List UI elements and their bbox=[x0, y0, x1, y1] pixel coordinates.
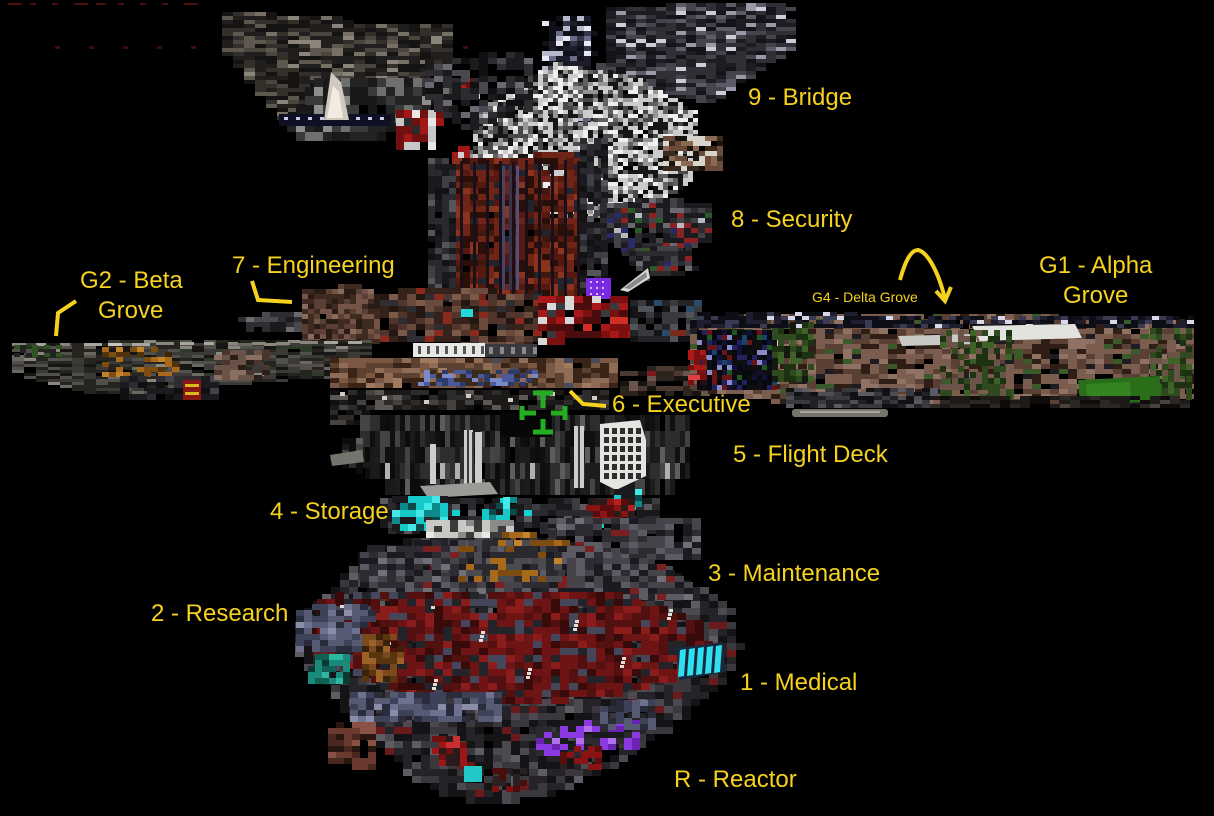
svg-text:G2 - Beta: G2 - Beta bbox=[80, 267, 183, 294]
svg-text:5 - Flight Deck: 5 - Flight Deck bbox=[733, 441, 889, 468]
svg-text:Grove: Grove bbox=[98, 297, 163, 324]
svg-text:9 - Bridge: 9 - Bridge bbox=[748, 84, 852, 111]
svg-text:4 - Storage: 4 - Storage bbox=[270, 498, 389, 525]
svg-text:6 - Executive: 6 - Executive bbox=[612, 391, 751, 418]
svg-text:2 - Research: 2 - Research bbox=[151, 600, 288, 627]
svg-text:G4 - Delta Grove: G4 - Delta Grove bbox=[812, 289, 918, 305]
svg-text:3 - Maintenance: 3 - Maintenance bbox=[708, 560, 880, 587]
svg-text:8 - Security: 8 - Security bbox=[731, 206, 852, 233]
svg-text:1 - Medical: 1 - Medical bbox=[740, 669, 857, 696]
svg-text:Grove: Grove bbox=[1063, 282, 1128, 309]
svg-text:7 - Engineering: 7 - Engineering bbox=[232, 252, 395, 279]
svg-text:G1 - Alpha: G1 - Alpha bbox=[1039, 252, 1153, 279]
svg-text:R - Reactor: R - Reactor bbox=[674, 766, 797, 793]
